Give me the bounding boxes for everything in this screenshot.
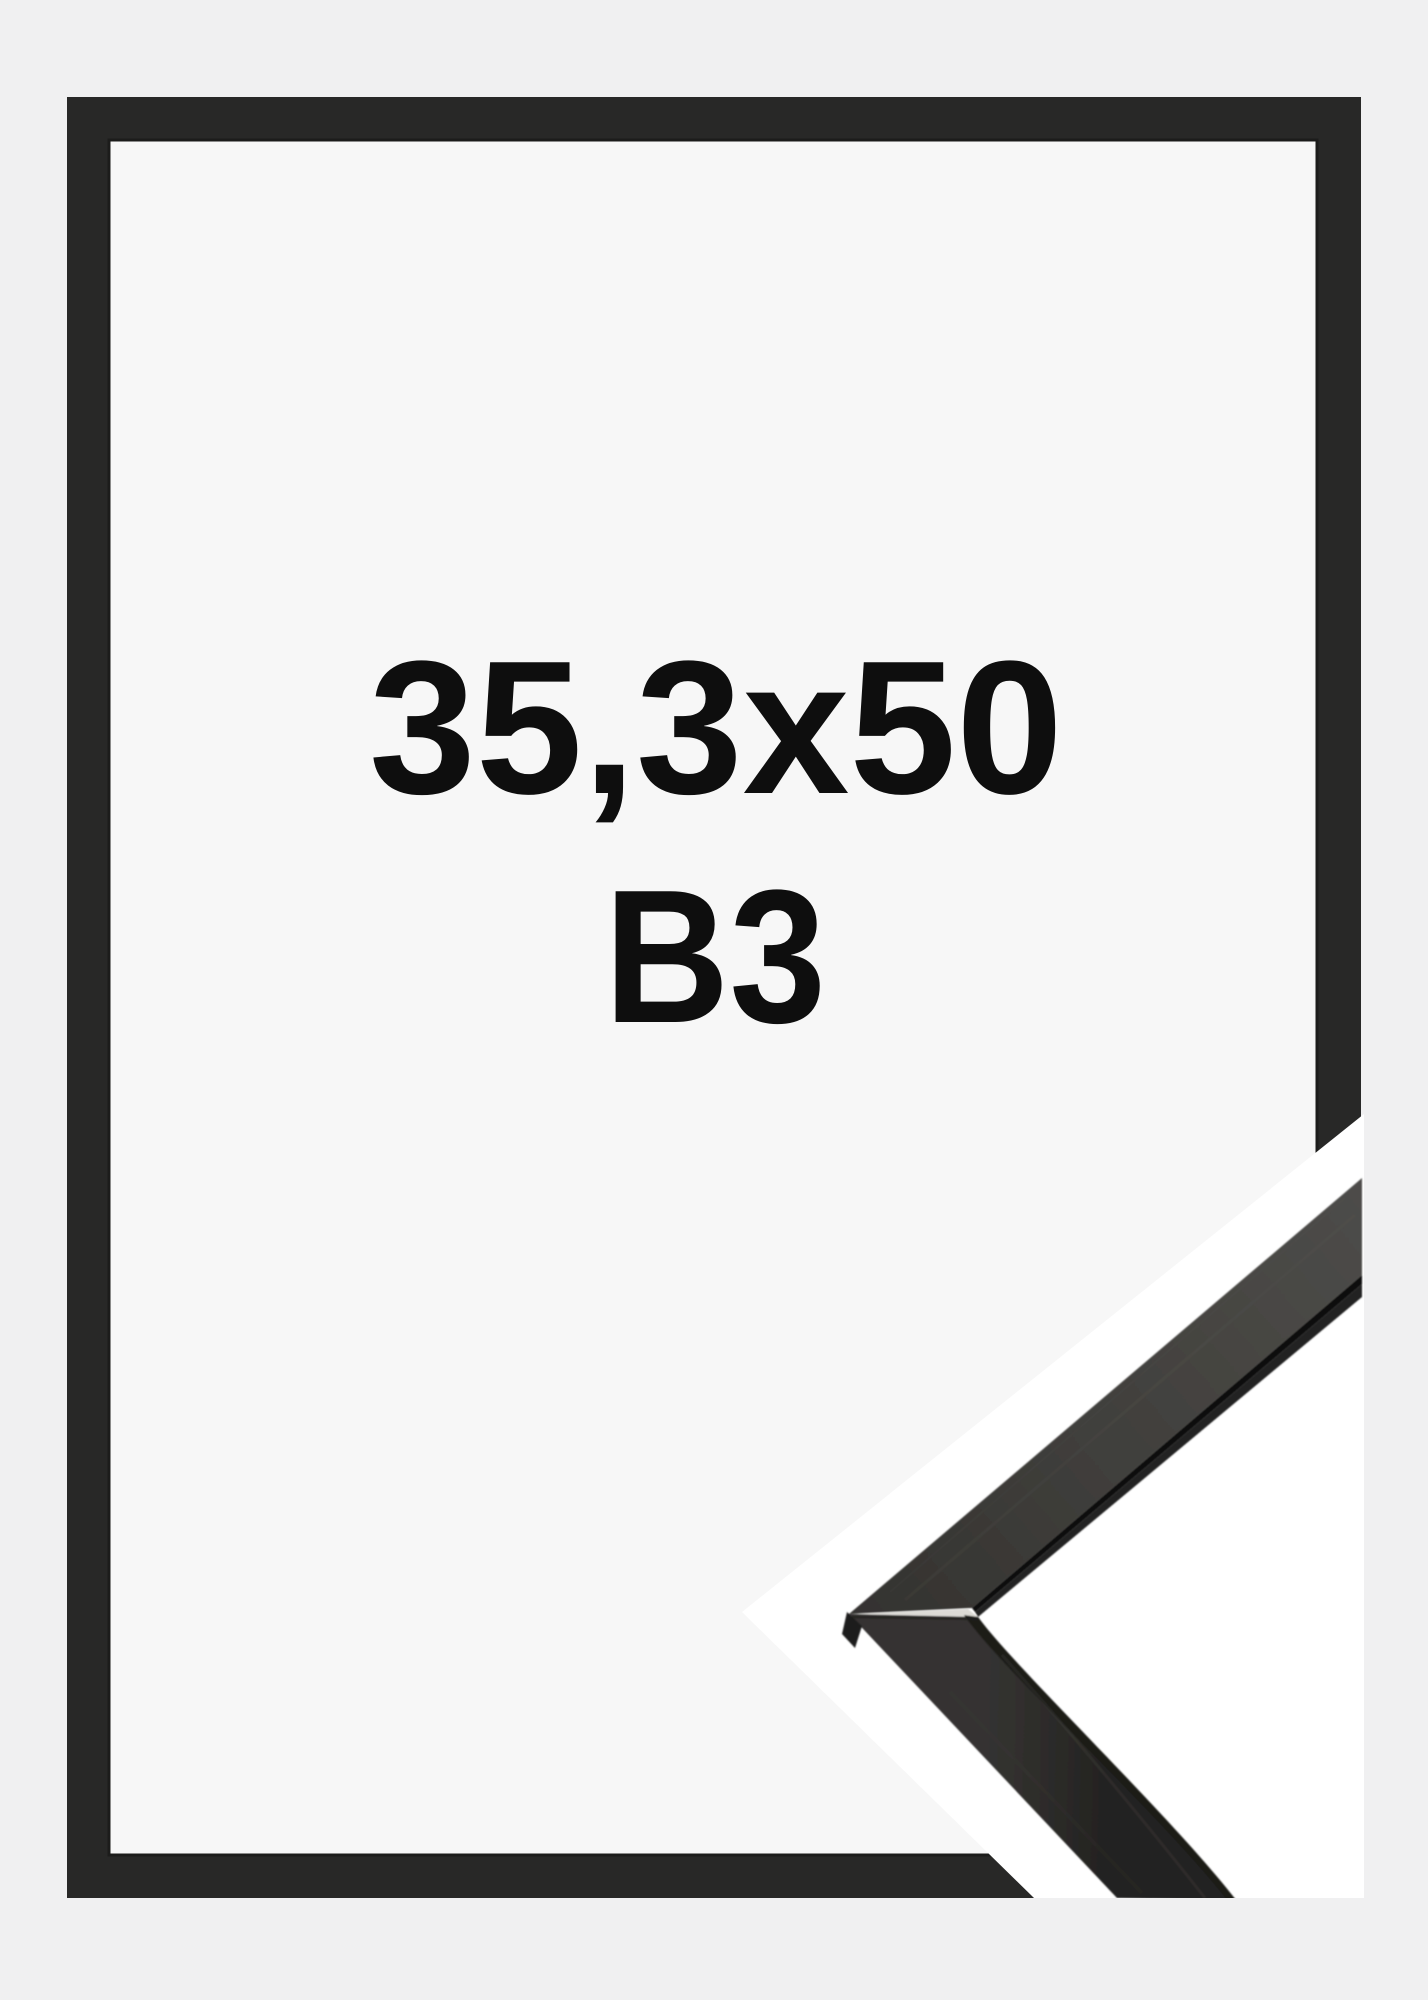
svg-text:B3: B3 <box>604 851 826 1063</box>
svg-text:35,3x50: 35,3x50 <box>369 622 1063 834</box>
